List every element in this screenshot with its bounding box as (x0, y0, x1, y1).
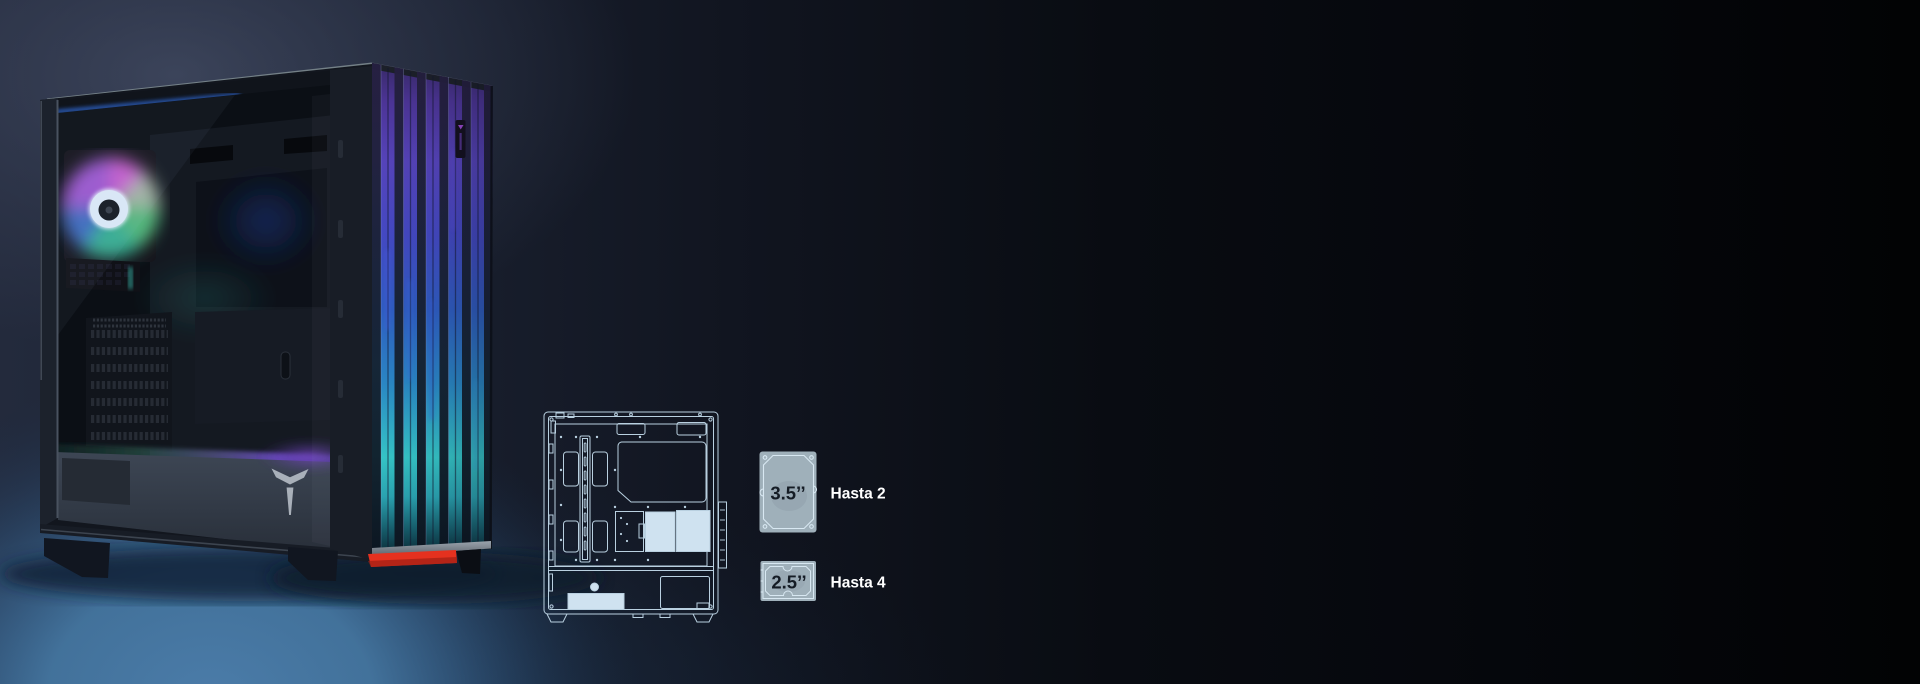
svg-text:3.5’’: 3.5’’ (770, 483, 805, 504)
svg-text:Hasta 4: Hasta 4 (831, 575, 887, 592)
svg-text:2.5’’: 2.5’’ (771, 572, 806, 593)
svg-text:Hasta 2: Hasta 2 (831, 486, 886, 503)
